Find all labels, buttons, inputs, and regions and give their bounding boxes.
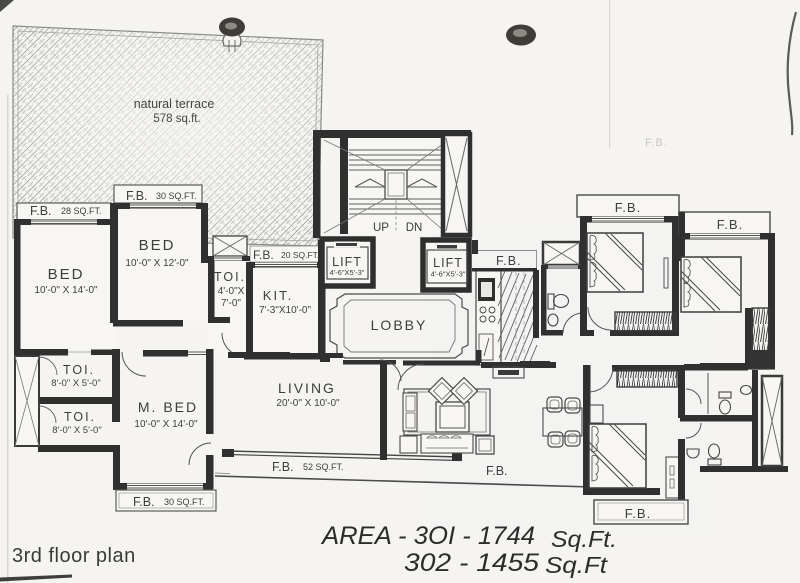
svg-text:4'-0"X: 4'-0"X xyxy=(218,286,245,297)
svg-text:8'-0" X 5'-0": 8'-0" X 5'-0" xyxy=(51,378,100,389)
svg-text:F.B.: F.B. xyxy=(496,254,522,268)
svg-text:4'-6"X5'-3": 4'-6"X5'-3" xyxy=(431,270,466,279)
svg-text:578 sq.ft.: 578 sq.ft. xyxy=(153,113,200,125)
svg-text:10'-0" X 14'-0": 10'-0" X 14'-0" xyxy=(134,419,198,430)
svg-text:F.B.: F.B. xyxy=(615,200,641,215)
svg-text:F.B.: F.B. xyxy=(645,137,668,149)
svg-text:302 - 1455: 302 - 1455 xyxy=(404,549,539,577)
svg-text:10'-0" X 14'-0": 10'-0" X 14'-0" xyxy=(34,285,98,296)
svg-text:BED: BED xyxy=(48,266,85,283)
svg-text:BED: BED xyxy=(139,237,176,254)
svg-text:7'-3"X10'-0": 7'-3"X10'-0" xyxy=(259,305,312,316)
svg-text:natural terrace: natural terrace xyxy=(134,97,215,111)
svg-text:F.B.: F.B. xyxy=(253,248,274,262)
svg-text:Sq.Ft.: Sq.Ft. xyxy=(551,526,617,552)
svg-text:4'-6"X5'-3": 4'-6"X5'-3" xyxy=(330,268,365,277)
svg-text:F.B.: F.B. xyxy=(30,204,52,218)
svg-text:10'-0" X 12'-0": 10'-0" X 12'-0" xyxy=(125,258,189,269)
svg-text:8'-0" X 5'-0": 8'-0" X 5'-0" xyxy=(52,425,101,436)
svg-text:UP: UP xyxy=(373,222,389,234)
svg-text:F.B.: F.B. xyxy=(272,460,294,474)
svg-text:LIFT: LIFT xyxy=(433,256,463,270)
svg-text:30 SQ.FT.: 30 SQ.FT. xyxy=(156,191,197,201)
svg-text:Sq.Ft: Sq.Ft xyxy=(545,552,609,578)
svg-text:AREA - 3OI - 1744: AREA - 3OI - 1744 xyxy=(320,522,535,550)
svg-text:20'-0" X 10'-0": 20'-0" X 10'-0" xyxy=(276,398,340,409)
svg-text:TOI.: TOI. xyxy=(64,410,96,424)
svg-text:LIFT: LIFT xyxy=(332,255,362,269)
svg-text:DN: DN xyxy=(406,222,423,234)
svg-text:F.B.: F.B. xyxy=(133,495,155,509)
svg-text:30 SQ.FT.: 30 SQ.FT. xyxy=(164,497,205,507)
svg-text:KIT.: KIT. xyxy=(263,288,293,303)
svg-text:7'-0": 7'-0" xyxy=(221,298,241,309)
svg-text:LIVING: LIVING xyxy=(278,380,336,396)
svg-text:F.B.: F.B. xyxy=(625,506,651,521)
svg-text:28 SQ.FT.: 28 SQ.FT. xyxy=(61,206,102,216)
svg-text:TOI.: TOI. xyxy=(214,270,246,284)
svg-text:M. BED: M. BED xyxy=(138,399,198,415)
svg-text:52 SQ.FT.: 52 SQ.FT. xyxy=(303,462,344,472)
svg-text:LOBBY: LOBBY xyxy=(371,317,428,333)
svg-text:TOI.: TOI. xyxy=(63,363,95,377)
svg-text:F.B.: F.B. xyxy=(717,217,743,232)
svg-text:3rd floor plan: 3rd floor plan xyxy=(12,545,136,567)
svg-text:F.B.: F.B. xyxy=(486,464,508,478)
svg-text:F.B.: F.B. xyxy=(126,189,148,203)
svg-text:20 SQ.FT.: 20 SQ.FT. xyxy=(281,250,319,260)
